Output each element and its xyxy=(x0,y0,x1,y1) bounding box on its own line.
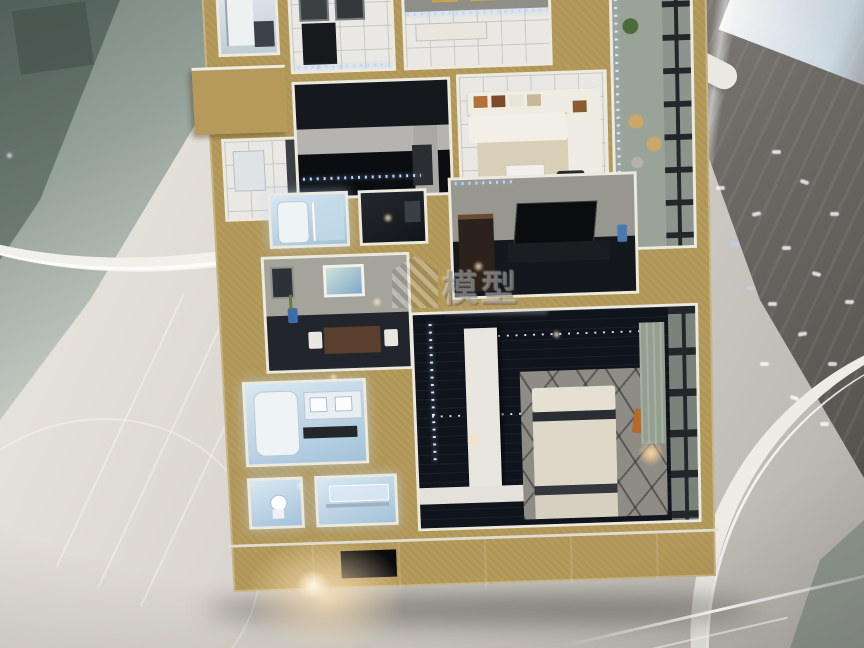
shower-rail xyxy=(326,502,389,508)
door-frame xyxy=(334,0,366,21)
curtain-panel xyxy=(639,322,667,444)
light-reflection-dot-blue xyxy=(730,242,739,246)
bathroom-large xyxy=(242,378,370,467)
bathtub xyxy=(253,390,301,456)
light-reflection-dot xyxy=(830,212,839,216)
entry-hall xyxy=(286,0,396,74)
striped-house-logo-icon xyxy=(392,256,438,308)
white-partition xyxy=(464,328,502,487)
hall-wardrobe xyxy=(302,23,338,65)
ceiling-beam xyxy=(303,426,358,439)
floor-led-dots-vertical xyxy=(429,324,437,464)
photo-scene: 模型 xyxy=(0,0,864,648)
bathtub xyxy=(276,201,309,244)
bokeh-light xyxy=(329,373,338,382)
wood-table xyxy=(324,326,381,354)
lamp-glow xyxy=(638,440,664,466)
blue-vase xyxy=(617,224,627,242)
light-reflection-dot xyxy=(760,362,769,366)
pillow xyxy=(491,95,505,107)
bed-foot xyxy=(535,493,618,520)
sink xyxy=(335,396,353,411)
blue-vase xyxy=(288,308,298,323)
study-room xyxy=(261,252,414,374)
led-strip xyxy=(455,180,514,185)
led-strip xyxy=(303,174,421,181)
bed-pillows xyxy=(532,385,616,412)
bathroom-mid xyxy=(267,191,350,249)
watermark: 模型 xyxy=(392,246,562,334)
bokeh-light xyxy=(6,152,13,159)
pillow xyxy=(527,94,541,106)
bathroom-small-2 xyxy=(314,473,399,527)
bench-seat xyxy=(415,21,487,41)
framed-art xyxy=(323,264,365,298)
wicker-chair xyxy=(647,137,662,152)
kitchen-island xyxy=(412,144,433,185)
sink xyxy=(309,397,327,412)
light-reflection-dot xyxy=(716,186,725,190)
bokeh-light xyxy=(372,297,382,307)
dark-room xyxy=(358,188,429,246)
bokeh-light xyxy=(552,330,561,339)
shower-glass xyxy=(329,484,389,502)
kitchen-upper-cabinets xyxy=(295,80,449,130)
white-partition-base xyxy=(419,484,535,504)
light-reflection-dot xyxy=(782,246,791,250)
table-light-glow-core xyxy=(296,570,330,600)
sofa-seat xyxy=(468,113,568,144)
bokeh-light xyxy=(467,434,480,447)
wardrobe xyxy=(224,0,255,46)
bokeh-light xyxy=(296,482,304,490)
wicker-chair xyxy=(628,114,643,129)
watermark-subtext-blur xyxy=(444,308,548,315)
bed-blanket xyxy=(533,419,618,486)
balcony-table xyxy=(631,157,643,169)
bokeh-light xyxy=(473,261,484,272)
shower-glass xyxy=(312,201,345,240)
potted-plant xyxy=(622,18,638,34)
light-reflection-dot xyxy=(768,302,777,306)
light-reflection-dot xyxy=(772,150,781,154)
porch-roof xyxy=(191,65,287,135)
light-reflection-dot-blue xyxy=(746,286,755,290)
closet-floor xyxy=(254,21,275,47)
bed xyxy=(532,380,619,519)
light-reflection-dot xyxy=(845,300,854,304)
kitchen xyxy=(291,77,454,201)
pillow xyxy=(509,95,523,107)
closet-room xyxy=(215,0,281,57)
pillow xyxy=(573,100,587,112)
dining-area xyxy=(400,0,553,70)
cabinet xyxy=(233,150,267,192)
toilet-tank xyxy=(272,509,284,519)
pillow xyxy=(473,96,487,108)
bokeh-light xyxy=(383,213,393,223)
cabinet-dark xyxy=(404,201,421,223)
light-reflection-dot xyxy=(828,362,837,366)
white-chair xyxy=(308,332,322,349)
door-frame xyxy=(298,0,330,22)
